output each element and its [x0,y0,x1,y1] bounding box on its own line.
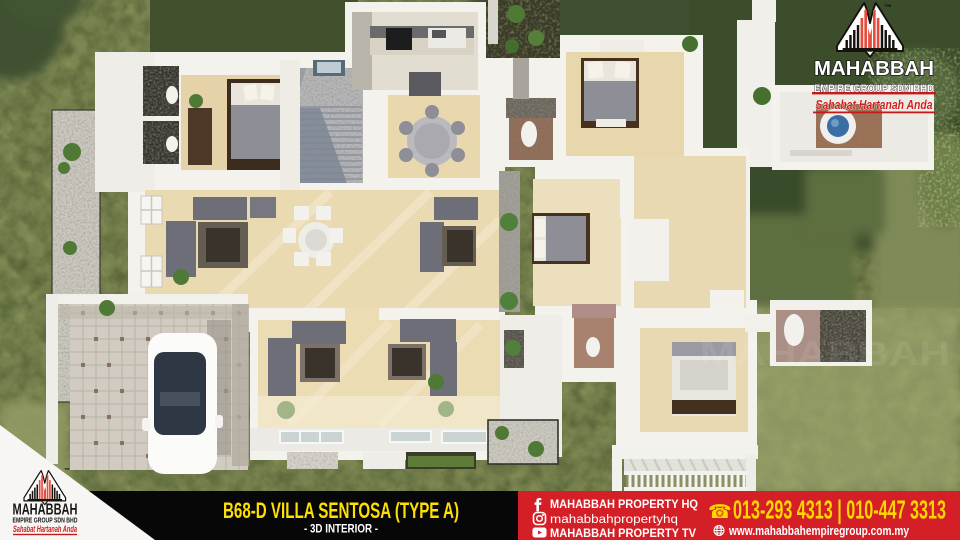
svg-text:www.mahabbahempiregroup.com.my: www.mahabbahempiregroup.com.my [728,523,909,538]
svg-text:MAHABBAH: MAHABBAH [700,335,950,373]
svg-text:™: ™ [64,467,70,474]
svg-text:- 3D INTERIOR -: - 3D INTERIOR - [304,524,378,536]
svg-text:™: ™ [884,3,892,12]
svg-text:013-293 4313 | 010-447 3313: 013-293 4313 | 010-447 3313 [733,495,946,525]
svg-text:mahabbahpropertyhq: mahabbahpropertyhq [550,514,678,526]
svg-text:MAHABBAH: MAHABBAH [814,57,934,80]
svg-text:Sahabat Hartanah Anda: Sahabat Hartanah Anda [13,524,77,535]
svg-text:Sahabat Hartanah Anda: Sahabat Hartanah Anda [816,97,933,112]
svg-text:B68-D VILLA SENTOSA (TYPE A): B68-D VILLA SENTOSA (TYPE A) [223,498,459,523]
svg-text:MAHABBAH PROPERTY HQ: MAHABBAH PROPERTY HQ [550,499,698,511]
svg-text:☎: ☎ [708,502,732,523]
svg-text:MAHABBAH PROPERTY TV: MAHABBAH PROPERTY TV [550,528,696,540]
